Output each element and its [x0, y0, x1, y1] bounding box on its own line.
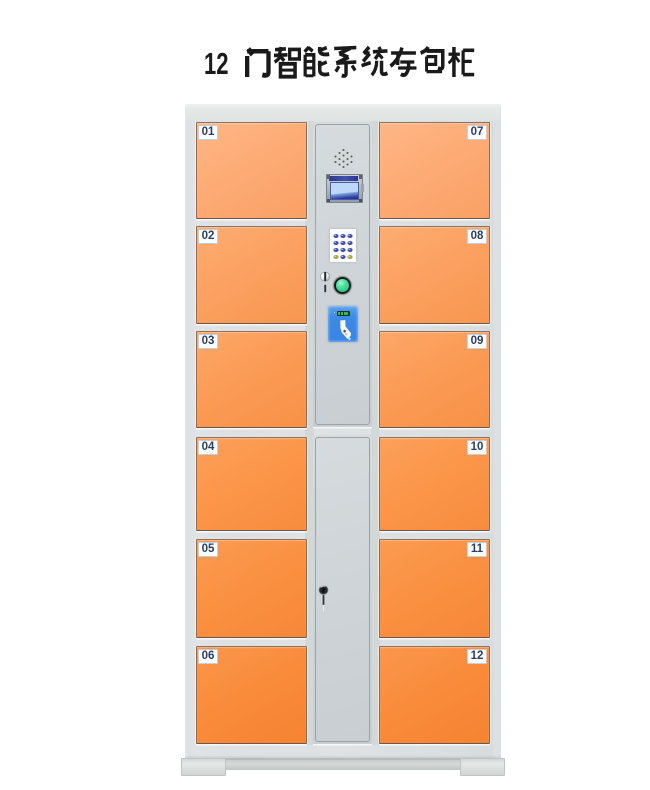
svg-text:12: 12 — [204, 46, 229, 81]
